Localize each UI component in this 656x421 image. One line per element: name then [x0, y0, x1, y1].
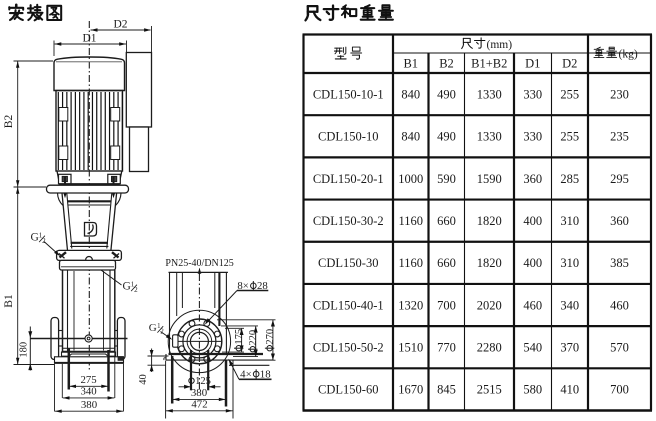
svg-text:1670: 1670 — [398, 383, 423, 397]
svg-text:845: 845 — [437, 383, 456, 397]
svg-text:285: 285 — [560, 172, 579, 186]
svg-text:660: 660 — [437, 214, 456, 228]
svg-text:1160: 1160 — [398, 256, 423, 270]
svg-text:340: 340 — [80, 386, 96, 398]
svg-text:700: 700 — [610, 383, 629, 397]
svg-text:460: 460 — [523, 298, 542, 312]
svg-text:540: 540 — [523, 341, 542, 355]
svg-text:D1: D1 — [525, 56, 540, 70]
svg-text:400: 400 — [523, 214, 542, 228]
svg-text:840: 840 — [401, 87, 420, 101]
svg-text:G: G — [123, 281, 131, 293]
svg-text:770: 770 — [437, 341, 456, 355]
svg-text:330: 330 — [523, 87, 542, 101]
svg-text:472: 472 — [191, 399, 207, 411]
svg-text:310: 310 — [560, 256, 579, 270]
svg-text:B2: B2 — [3, 115, 15, 129]
svg-text:CDL150-30: CDL150-30 — [318, 256, 378, 270]
svg-text:275: 275 — [80, 374, 96, 386]
svg-text:CDL150-10: CDL150-10 — [318, 130, 378, 144]
svg-text:360: 360 — [610, 214, 629, 228]
svg-text:180: 180 — [18, 342, 29, 358]
svg-text:1820: 1820 — [477, 214, 502, 228]
svg-text:660: 660 — [437, 256, 456, 270]
svg-text:490: 490 — [437, 87, 456, 101]
svg-text:G: G — [31, 232, 39, 244]
svg-text:B2: B2 — [439, 56, 454, 70]
svg-text:CDL150-30-2: CDL150-30-2 — [313, 214, 384, 228]
svg-text:380: 380 — [191, 387, 207, 399]
svg-text:1330: 1330 — [477, 130, 502, 144]
svg-text:40: 40 — [138, 374, 149, 385]
svg-text:370: 370 — [560, 341, 579, 355]
svg-text:CDL150-20-1: CDL150-20-1 — [313, 172, 384, 186]
svg-text:590: 590 — [437, 172, 456, 186]
svg-text:1330: 1330 — [477, 87, 502, 101]
svg-text:310: 310 — [560, 214, 579, 228]
svg-text:2515: 2515 — [477, 383, 502, 397]
svg-text:G: G — [149, 322, 157, 334]
svg-text:2020: 2020 — [477, 298, 502, 312]
svg-text:D2: D2 — [562, 56, 577, 70]
svg-text:360: 360 — [523, 172, 542, 186]
svg-text:(mm): (mm) — [487, 39, 513, 51]
svg-text:380: 380 — [81, 399, 97, 411]
svg-text:255: 255 — [560, 130, 579, 144]
svg-text:230: 230 — [610, 87, 629, 101]
svg-text:B1: B1 — [3, 294, 15, 308]
svg-text:2280: 2280 — [477, 341, 502, 355]
svg-text:D1: D1 — [82, 33, 96, 45]
svg-text:1820: 1820 — [477, 256, 502, 270]
svg-text:255: 255 — [560, 87, 579, 101]
svg-text:1590: 1590 — [477, 172, 502, 186]
svg-text:(kg): (kg) — [619, 48, 638, 60]
svg-text:410: 410 — [560, 383, 579, 397]
svg-text:400: 400 — [523, 256, 542, 270]
svg-text:1320: 1320 — [398, 298, 423, 312]
svg-text:175: 175 — [234, 329, 245, 345]
svg-text:1510: 1510 — [398, 341, 423, 355]
svg-text:B1+B2: B1+B2 — [471, 56, 507, 70]
svg-text:580: 580 — [523, 383, 542, 397]
svg-text:840: 840 — [401, 130, 420, 144]
svg-text:PN25-40/DN125: PN25-40/DN125 — [165, 258, 233, 269]
svg-text:270: 270 — [265, 329, 276, 345]
svg-text:B1: B1 — [403, 56, 418, 70]
svg-text:CDL150-50-2: CDL150-50-2 — [313, 341, 384, 355]
svg-text:125: 125 — [195, 376, 211, 387]
svg-text:700: 700 — [437, 298, 456, 312]
svg-text:CDL150-60: CDL150-60 — [318, 383, 378, 397]
svg-text:1160: 1160 — [398, 214, 423, 228]
svg-text:D2: D2 — [113, 19, 127, 31]
svg-text:CDL150-40-1: CDL150-40-1 — [313, 298, 384, 312]
svg-text:1000: 1000 — [398, 172, 423, 186]
svg-text:220: 220 — [248, 330, 259, 346]
svg-text:490: 490 — [437, 130, 456, 144]
svg-text:235: 235 — [610, 130, 629, 144]
svg-text:460: 460 — [610, 298, 629, 312]
svg-text:340: 340 — [560, 298, 579, 312]
svg-text:385: 385 — [610, 256, 629, 270]
svg-text:295: 295 — [610, 172, 629, 186]
svg-text:330: 330 — [523, 130, 542, 144]
svg-text:570: 570 — [610, 341, 629, 355]
svg-text:CDL150-10-1: CDL150-10-1 — [313, 87, 384, 101]
